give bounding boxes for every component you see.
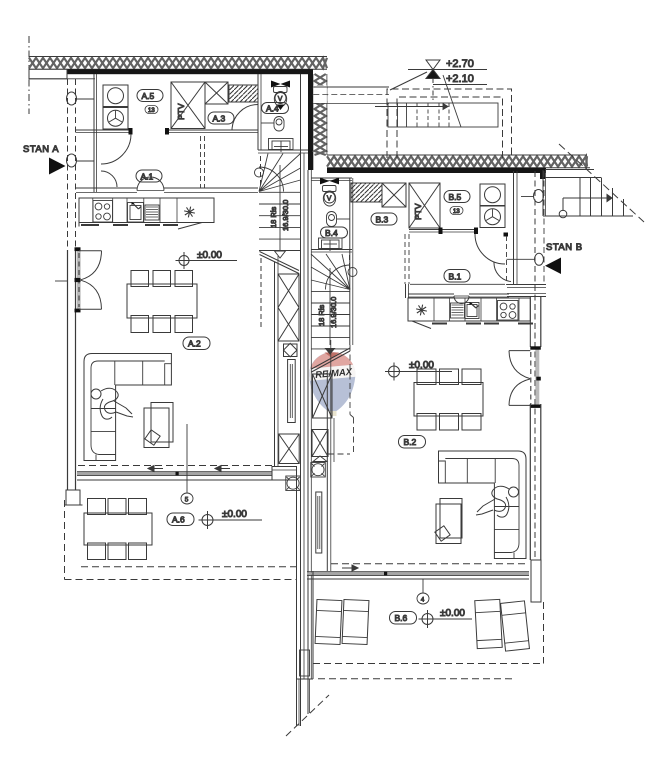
svg-text:V: V: [327, 196, 332, 203]
svg-text:V: V: [278, 96, 283, 103]
svg-text:±0.00: ±0.00: [440, 608, 465, 619]
svg-text:±0.00: ±0.00: [197, 250, 222, 261]
svg-text:A.5: A.5: [142, 91, 155, 101]
svg-text:PTV: PTV: [176, 103, 186, 120]
svg-text:STAN B: STAN B: [546, 242, 583, 253]
svg-text:PTV: PTV: [413, 203, 423, 220]
svg-text:5: 5: [185, 497, 189, 504]
svg-text:±0.00: ±0.00: [222, 509, 247, 520]
svg-text:18 Ris: 18 Ris: [317, 304, 326, 326]
svg-text:16.9/30.0: 16.9/30.0: [329, 297, 338, 328]
svg-text:13: 13: [453, 209, 460, 215]
svg-text:+2.10: +2.10: [446, 73, 474, 85]
svg-text:16.9/30.0: 16.9/30.0: [281, 200, 290, 231]
svg-text:13: 13: [148, 108, 155, 114]
svg-text:A.2: A.2: [188, 339, 201, 349]
svg-text:B.4: B.4: [325, 228, 338, 238]
svg-text:18 Ris: 18 Ris: [269, 206, 278, 228]
svg-text:4: 4: [421, 597, 425, 604]
svg-text:B.2: B.2: [404, 437, 417, 447]
svg-text:A.3: A.3: [213, 114, 226, 124]
svg-text:STAN A: STAN A: [23, 144, 59, 155]
svg-text:A.6: A.6: [172, 515, 185, 525]
svg-text:+2.70: +2.70: [446, 58, 474, 70]
svg-text:B.3: B.3: [376, 215, 389, 225]
svg-text:A.4: A.4: [266, 104, 279, 114]
svg-text:B.5: B.5: [449, 192, 462, 202]
svg-text:B.6: B.6: [395, 613, 408, 623]
svg-text:B.1: B.1: [449, 271, 462, 281]
